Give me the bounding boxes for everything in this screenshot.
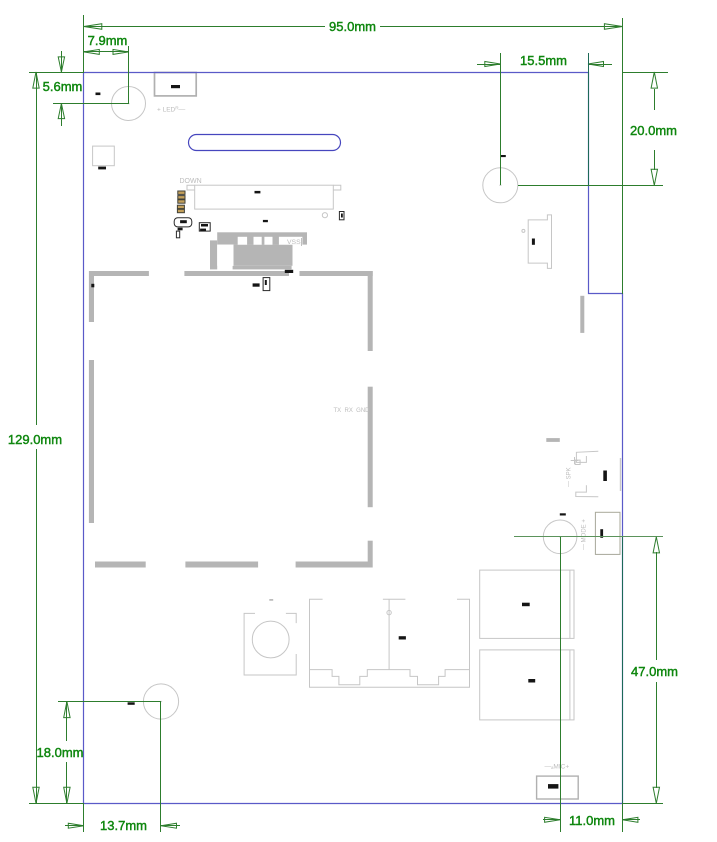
svg-text:TX RX GND: TX RX GND [334, 408, 371, 414]
svg-text:13.7mm: 13.7mm [100, 818, 147, 833]
svg-text:15.5mm: 15.5mm [520, 53, 567, 68]
svg-text:— MODE +: — MODE + [582, 519, 588, 550]
svg-text:18.0mm: 18.0mm [37, 745, 84, 760]
svg-text:5.6mm: 5.6mm [43, 79, 83, 94]
svg-text:VSS: VSS [287, 239, 301, 246]
svg-text:11.0mm: 11.0mm [569, 813, 615, 828]
svg-text:— SPK: — SPK [567, 467, 573, 487]
svg-text:20.0mm: 20.0mm [630, 123, 677, 138]
svg-text:—ₐMIC+: —ₐMIC+ [545, 764, 570, 771]
svg-text:+ LEDR—: + LEDR— [157, 105, 186, 113]
svg-text:47.0mm: 47.0mm [631, 664, 678, 679]
svg-text:DOWN: DOWN [180, 178, 202, 185]
svg-text:7.9mm: 7.9mm [88, 33, 128, 48]
svg-text:129.0mm: 129.0mm [8, 432, 62, 447]
svg-text:95.0mm: 95.0mm [329, 19, 376, 34]
